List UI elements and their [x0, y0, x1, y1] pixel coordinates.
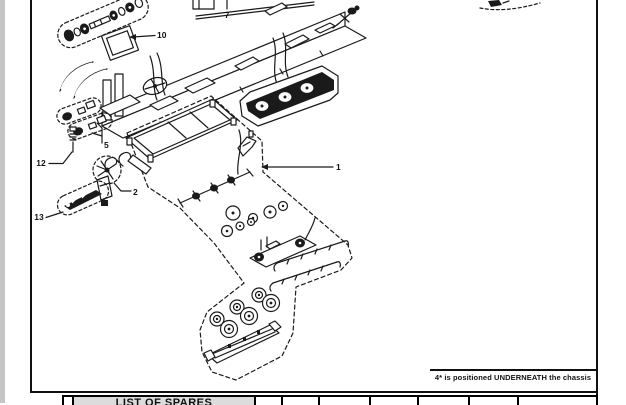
table-column-divider	[369, 397, 371, 405]
scanned-service-sheet-page: { "diagram": { "note": "4* is positioned…	[0, 0, 626, 403]
keeper-plate-part	[204, 321, 281, 363]
exploded-parts-drawing: 7 10 5 12 2 13 1	[0, 0, 626, 403]
part-label-1: 1	[336, 162, 341, 172]
partial-part-top-center	[193, 0, 214, 9]
headcode-panel-part	[101, 26, 138, 61]
partial-part-top-right	[480, 0, 540, 10]
table-column-divider	[318, 397, 320, 405]
part-label-13: 13	[34, 212, 44, 222]
part-label-10: 10	[157, 30, 167, 40]
list-of-spares-header-label: LIST OF SPARES	[72, 398, 256, 405]
table-column-divider	[62, 397, 64, 405]
table-column-divider	[72, 397, 74, 405]
table-column-divider	[517, 397, 519, 405]
spring-screw-part	[70, 127, 76, 152]
table-column-divider	[596, 397, 598, 405]
table-column-divider	[281, 397, 283, 405]
part-label-5: 5	[104, 140, 109, 150]
part-label-2: 2	[133, 187, 138, 197]
table-column-divider	[417, 397, 419, 405]
list-of-spares-table: LIST OF SPARES	[62, 395, 598, 405]
motor-assembly	[250, 218, 316, 267]
driveshaft-assembly-group	[54, 0, 153, 52]
gear-cluster	[222, 202, 288, 237]
table-column-divider	[468, 397, 470, 405]
part-label-7: 7	[225, 10, 230, 20]
list-of-spares-header-cell: LIST OF SPARES	[72, 397, 256, 405]
table-column-divider	[254, 397, 256, 405]
part-label-12: 12	[36, 158, 46, 168]
handrail-parts	[60, 62, 107, 98]
